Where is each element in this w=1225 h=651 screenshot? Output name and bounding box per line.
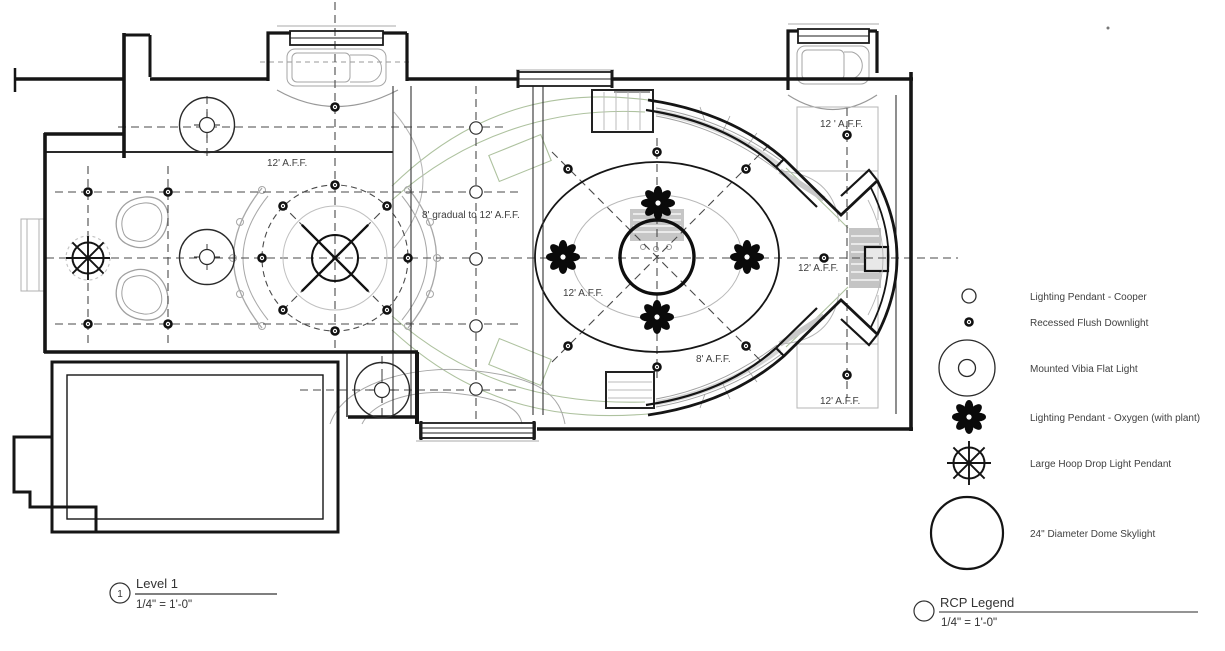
downlight-legend-icon	[964, 317, 974, 327]
legend-label: Lighting Pendant - Cooper	[1030, 292, 1147, 303]
bay-seat	[260, 49, 412, 107]
rcp-legend: Lighting Pendant - CooperRecessed Flush …	[914, 289, 1200, 629]
window	[416, 421, 539, 441]
rcp-drawing: 12' A.F.F.8' gradual to 12' A.F.F.12' A.…	[0, 0, 1225, 651]
legend-row: Large Hoop Drop Light Pendant	[947, 441, 1171, 485]
view-number: 1	[117, 589, 123, 600]
aff-annotation: 12 ' A.F.F.	[820, 119, 863, 130]
chair	[116, 269, 168, 320]
vibia-legend-icon	[939, 340, 995, 396]
legend-items: Lighting Pendant - CooperRecessed Flush …	[931, 289, 1200, 569]
aff-annotation: 12' A.F.F.	[267, 158, 307, 169]
legend-row: Recessed Flush Downlight	[964, 317, 1148, 329]
left-window	[21, 219, 45, 291]
chair	[116, 197, 168, 248]
hoop-legend-icon	[947, 441, 991, 485]
window	[277, 26, 396, 45]
legend-row: Mounted Vibia Flat Light	[939, 340, 1138, 396]
stray-mark	[1107, 27, 1110, 30]
walls	[14, 31, 913, 532]
aff-annotation: 12' A.F.F.	[820, 396, 860, 407]
aff-annotation: 12' A.F.F.	[563, 288, 603, 299]
view-title: 1 Level 1 1/4" = 1'-0"	[110, 576, 277, 611]
aff-annotation: 8' A.F.F.	[696, 354, 731, 365]
aff-annotation: 8' gradual to 12' A.F.F.	[422, 210, 520, 221]
rcp-sheet: 12' A.F.F.8' gradual to 12' A.F.F.12' A.…	[0, 0, 1225, 651]
legend-title: RCP Legend	[940, 595, 1014, 610]
legend-label: 24" Diameter Dome Skylight	[1030, 529, 1155, 540]
view-scale: 1/4" = 1'-0"	[136, 599, 192, 611]
window	[788, 24, 879, 43]
legend-label: Recessed Flush Downlight	[1030, 318, 1149, 329]
legend-label: Lighting Pendant - Oxygen (with plant)	[1030, 413, 1200, 424]
legend-row: Lighting Pendant - Oxygen (with plant)	[952, 400, 1200, 434]
legend-row: Lighting Pendant - Cooper	[962, 289, 1147, 303]
hoop-pendant	[66, 236, 110, 280]
legend-label: Large Hoop Drop Light Pendant	[1030, 459, 1171, 470]
view-name: Level 1	[136, 576, 178, 591]
legend-label: Mounted Vibia Flat Light	[1030, 364, 1138, 375]
dome-legend-icon	[931, 497, 1003, 569]
window	[516, 70, 614, 88]
oxygen-pendants	[546, 186, 764, 334]
cooper-legend-icon	[962, 289, 976, 303]
legend-scale: 1/4" = 1'-0"	[941, 617, 997, 629]
legend-row: 24" Diameter Dome Skylight	[931, 497, 1155, 569]
aff-annotation: 12' A.F.F.	[798, 263, 838, 274]
oxygen-legend-icon	[952, 400, 986, 434]
cooper-pendants	[470, 122, 482, 395]
